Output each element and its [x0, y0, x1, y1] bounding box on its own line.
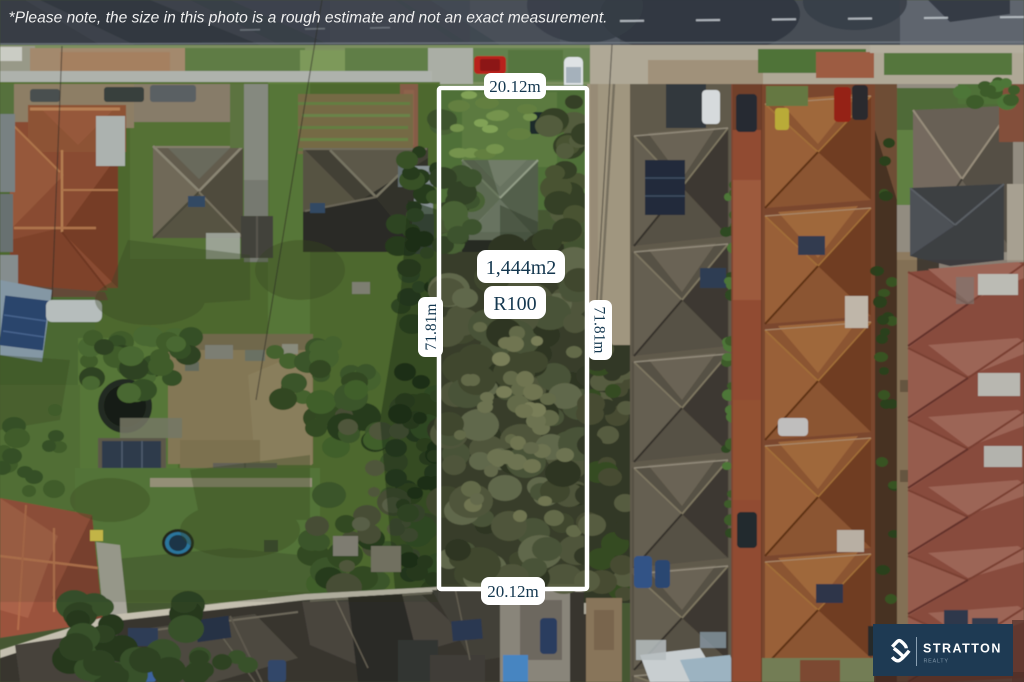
svg-text:R100: R100 — [493, 293, 536, 315]
svg-text:STRATTON: STRATTON — [923, 642, 1002, 656]
svg-text:71.81m: 71.81m — [423, 304, 440, 351]
svg-text:*Please note, the size in this: *Please note, the size in this photo is … — [9, 10, 608, 27]
svg-text:20.12m: 20.12m — [489, 77, 540, 96]
svg-text:REALTY: REALTY — [924, 659, 949, 665]
svg-text:20.12m: 20.12m — [487, 582, 538, 601]
svg-text:71.81m: 71.81m — [591, 307, 608, 354]
svg-text:1,444m2: 1,444m2 — [486, 257, 557, 279]
